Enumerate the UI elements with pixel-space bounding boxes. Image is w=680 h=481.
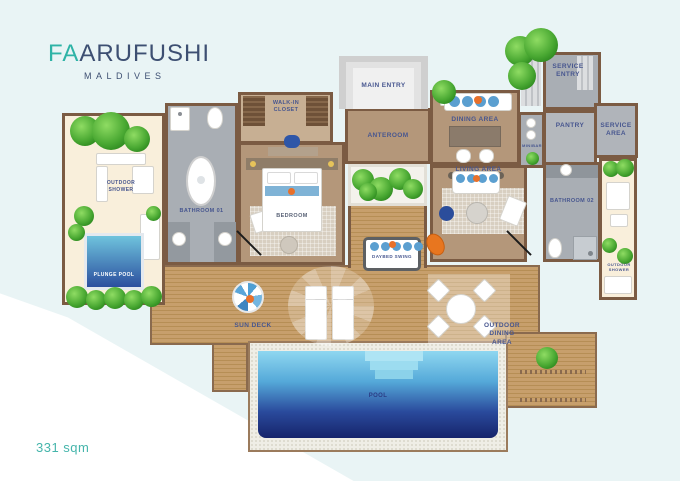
- outdoor-dining-table: [446, 294, 476, 324]
- walk-in-closet-label: WALK-IN CLOSET: [262, 100, 310, 114]
- brand-name-start: FA: [48, 40, 79, 67]
- plant-icon: [146, 206, 161, 221]
- pool-steps: [370, 361, 418, 370]
- toilet-icon: [207, 107, 223, 129]
- pouf-icon: [439, 206, 454, 221]
- plunge-pool-label: PLUNGE POOL: [87, 272, 141, 279]
- beach-float: [232, 281, 264, 313]
- pool-steps: [375, 370, 413, 379]
- daybed-swing: DAYBED SWING: [363, 237, 421, 271]
- plant-icon: [124, 126, 150, 152]
- coffee-table: [466, 202, 488, 224]
- minibar-label: MINIBAR: [514, 143, 550, 148]
- plant-icon: [141, 286, 162, 307]
- daybed-swing-label: DAYBED SWING: [366, 254, 418, 260]
- cushion: [414, 242, 423, 251]
- bench-accent-pillow: [474, 96, 482, 104]
- brand-name: FAARUFUSHI: [48, 40, 210, 68]
- daybed-accent-pillow: [389, 241, 396, 248]
- outdoor-shower-2-label: OUTDOOR SHOWER: [604, 262, 634, 272]
- plant-icon: [536, 347, 558, 369]
- floorplan-page: FAARUFUSHI MALDIVES 331 sqm POOL OUTDOOR…: [0, 0, 680, 481]
- vanity-desk: [268, 147, 318, 156]
- float-center: [246, 295, 254, 303]
- cushion: [488, 96, 499, 107]
- shower-icon: [170, 107, 190, 131]
- plant-icon: [359, 183, 377, 201]
- pillow: [294, 172, 318, 184]
- deck-strip-left-of-pool: [212, 345, 248, 392]
- umbrella-icon: [288, 266, 374, 346]
- plunge-pool: PLUNGE POOL: [84, 233, 144, 290]
- bed-icon: BEDROOM: [262, 168, 322, 232]
- shower-head-icon: [178, 112, 182, 116]
- outdoor-shower-bench: [96, 153, 146, 165]
- anteroom-label: ANTEROOM: [345, 132, 431, 140]
- outdoor-shower-label: OUTDOOR SHOWER: [100, 180, 142, 193]
- main-entry-label: MAIN ENTRY: [339, 82, 428, 90]
- plant-icon: [616, 159, 634, 177]
- planter-box: [348, 164, 427, 206]
- plant-icon: [66, 286, 88, 308]
- plant-icon: [68, 224, 85, 241]
- shower-icon: [573, 236, 597, 260]
- sofa-icon: [452, 171, 500, 194]
- sun-deck-label: SUN DECK: [218, 322, 288, 330]
- pool-water: POOL: [258, 351, 498, 438]
- plant-icon: [602, 238, 617, 253]
- plant-icon: [104, 287, 126, 309]
- dining-chair: [479, 149, 494, 163]
- brand-subtitle: MALDIVES: [84, 71, 210, 81]
- lamp-icon: [328, 161, 334, 167]
- lamp-icon: [250, 161, 256, 167]
- plant-icon: [524, 28, 558, 62]
- service-area-label: SERVICE AREA: [594, 122, 638, 139]
- plant-icon: [74, 206, 94, 226]
- dining-area-label: DINING AREA: [430, 116, 520, 124]
- brand-logo: FAARUFUSHI MALDIVES: [48, 40, 210, 81]
- desk-chair: [284, 135, 300, 148]
- outdoor-dining-label: OUTDOOR DINING AREA: [480, 322, 524, 347]
- plant-icon: [526, 152, 539, 165]
- minibar-sink: [526, 130, 536, 140]
- bathroom-02-label: BATHROOM 02: [543, 198, 601, 205]
- plant-icon: [432, 80, 456, 104]
- courtyard-bench: [606, 182, 630, 210]
- vanity-counter: [546, 165, 598, 178]
- cushion: [456, 174, 465, 183]
- plant-icon: [86, 290, 106, 310]
- bathtub-drain: [197, 176, 205, 184]
- plant-icon: [403, 179, 423, 199]
- cushion: [370, 242, 379, 251]
- bathtub-icon: [186, 156, 216, 206]
- sink-icon: [560, 164, 572, 176]
- pool-surround: POOL: [248, 341, 508, 452]
- courtyard-fixture: [604, 276, 632, 294]
- cushion: [489, 174, 498, 183]
- brand-name-end: ARUFUSHI: [79, 40, 210, 67]
- bedroom-label: BEDROOM: [263, 213, 321, 220]
- main-entry-steps: MAIN ENTRY: [339, 56, 428, 109]
- deck-step-hatch: [520, 398, 586, 402]
- minibar-sink: [526, 118, 536, 128]
- living-area-label: LIVING AREA: [430, 166, 527, 174]
- sofa-accent-pillow: [473, 175, 480, 182]
- dining-table: [449, 126, 501, 147]
- toilet-icon: [548, 238, 562, 258]
- pool-steps: [365, 351, 423, 361]
- courtyard-bench: [610, 214, 628, 227]
- shower-head-icon: [588, 251, 593, 256]
- sink-icon: [172, 232, 186, 246]
- plant-icon: [508, 62, 536, 90]
- bed-accent-pillow: [288, 188, 295, 195]
- dining-chair: [456, 149, 471, 163]
- pillow: [267, 172, 291, 184]
- service-entry-label: SERVICE ENTRY: [543, 63, 593, 80]
- pantry-label: PANTRY: [543, 122, 597, 130]
- sink-icon: [218, 232, 232, 246]
- cushion: [403, 242, 412, 251]
- pouf-icon: [280, 236, 298, 254]
- cushion: [462, 96, 473, 107]
- bathroom-01-label: BATHROOM 01: [164, 208, 239, 215]
- pool-label: POOL: [258, 393, 498, 401]
- deck-step-hatch: [520, 370, 586, 374]
- total-area-label: 331 sqm: [36, 440, 89, 455]
